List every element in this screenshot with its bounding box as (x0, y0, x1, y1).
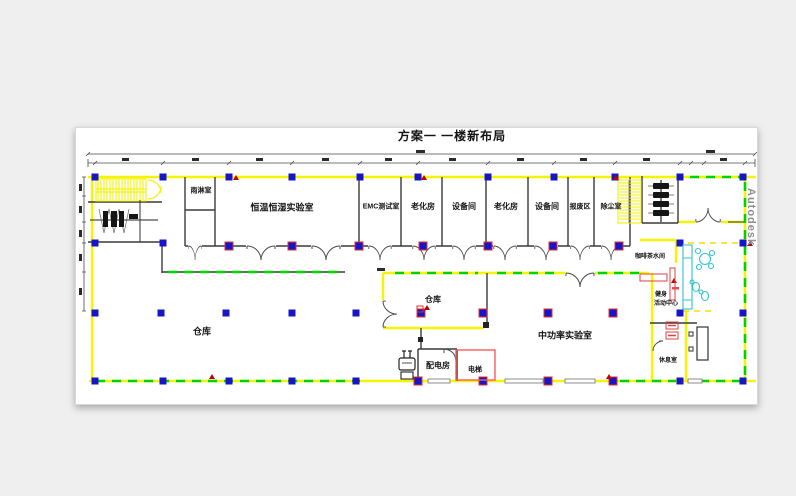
drawing-title: 方案一 一楼新布局 (398, 130, 506, 142)
room-label-warehouse-large: 仓库 (193, 328, 211, 337)
room-label-medium-power-lab: 中功率实验室 (538, 332, 592, 341)
room-label-aging-1: 老化房 (411, 203, 435, 211)
room-label-aging-2: 老化房 (494, 203, 518, 211)
room-label-rain-shower: 雨淋室 (191, 188, 212, 195)
screenshot-root: { "title": "方案一 一楼新布局", "watermark": "Au… (0, 0, 796, 496)
room-label-fitness-line2: 活动中心 (654, 301, 678, 307)
room-label-fitness-line1: 健身 (655, 292, 667, 298)
drawing-sheet (75, 127, 758, 405)
room-label-coffee-water: 咖啡茶水间 (635, 254, 665, 260)
room-label-elevator: 电梯 (468, 367, 482, 374)
room-label-warehouse-small: 仓库 (425, 296, 441, 304)
room-label-scrap-area: 报废区 (570, 204, 591, 211)
room-label-dust-removal: 除尘室 (601, 204, 622, 211)
autodesk-watermark: Autodesk (745, 188, 757, 246)
room-label-rest-room: 休息室 (659, 358, 677, 364)
room-label-power-distribution: 配电房 (426, 362, 450, 370)
room-label-climate-lab: 恒温恒湿实验室 (250, 204, 313, 213)
room-label-emc-test: EMC测试室 (363, 204, 400, 211)
room-label-equipment-1: 设备间 (452, 203, 476, 211)
room-label-equipment-2: 设备间 (535, 203, 559, 211)
